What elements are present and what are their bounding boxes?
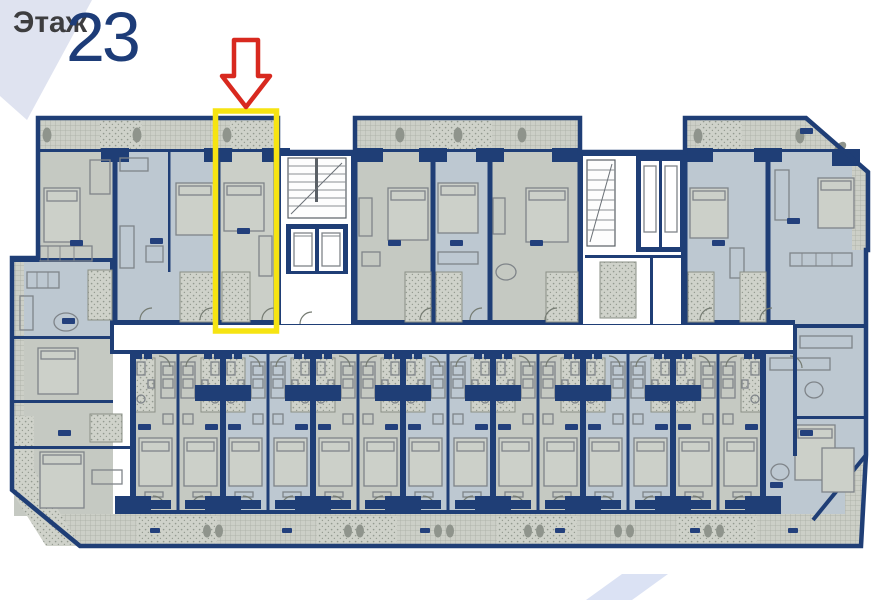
elevator-core-left [277, 152, 355, 324]
floor-plan-page: Этаж 23 [0, 0, 887, 600]
staircase-2 [587, 160, 615, 246]
elevators-2 [636, 156, 684, 252]
deco-shape-bottom-right [586, 574, 668, 600]
elevator-core-right [579, 152, 685, 324]
staircase [288, 158, 346, 218]
elevators [286, 224, 348, 274]
floor-plan [0, 0, 887, 600]
down-arrow-icon [222, 40, 270, 107]
floor-number: 23 [66, 2, 138, 72]
